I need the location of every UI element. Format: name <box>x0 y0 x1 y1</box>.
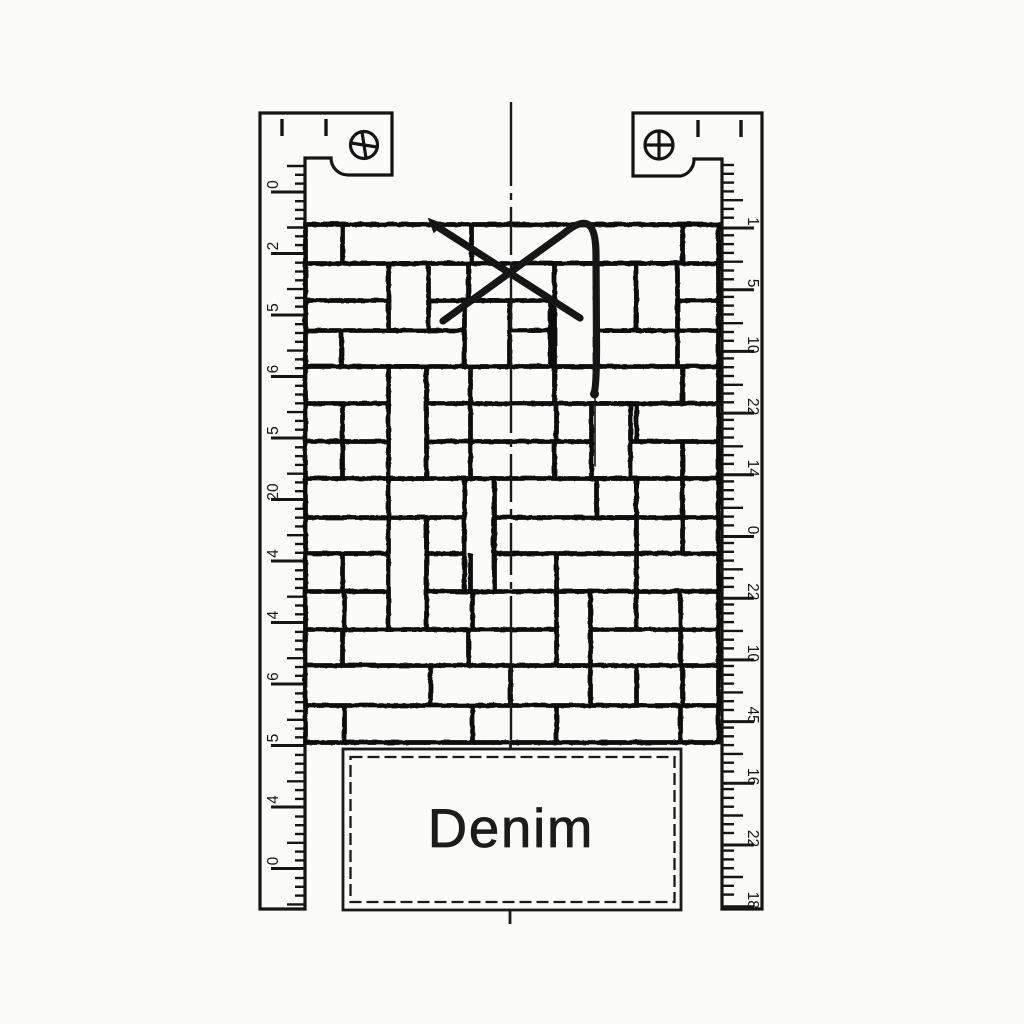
svg-text:10: 10 <box>744 336 761 354</box>
svg-text:22: 22 <box>744 583 761 600</box>
svg-text:0: 0 <box>744 526 761 535</box>
svg-text:5: 5 <box>265 303 282 312</box>
svg-text:2: 2 <box>265 242 282 251</box>
svg-text:4: 4 <box>265 610 282 619</box>
svg-text:Denim: Denim <box>428 798 595 859</box>
svg-text:1: 1 <box>744 217 761 226</box>
svg-text:0: 0 <box>265 856 282 865</box>
svg-text:20: 20 <box>265 483 282 501</box>
svg-text:5: 5 <box>265 426 282 435</box>
svg-text:6: 6 <box>265 365 282 374</box>
svg-text:10: 10 <box>744 645 761 663</box>
svg-text:45: 45 <box>744 706 761 723</box>
svg-text:6: 6 <box>265 672 282 681</box>
svg-text:4: 4 <box>265 549 282 558</box>
svg-text:5: 5 <box>744 279 761 288</box>
svg-text:22: 22 <box>744 830 761 847</box>
svg-text:5: 5 <box>265 734 282 743</box>
svg-text:4: 4 <box>265 795 282 804</box>
svg-text:14: 14 <box>744 460 761 478</box>
svg-text:22: 22 <box>744 398 761 415</box>
svg-text:18: 18 <box>744 892 761 909</box>
svg-text:0: 0 <box>265 180 282 189</box>
svg-text:16: 16 <box>744 768 761 785</box>
